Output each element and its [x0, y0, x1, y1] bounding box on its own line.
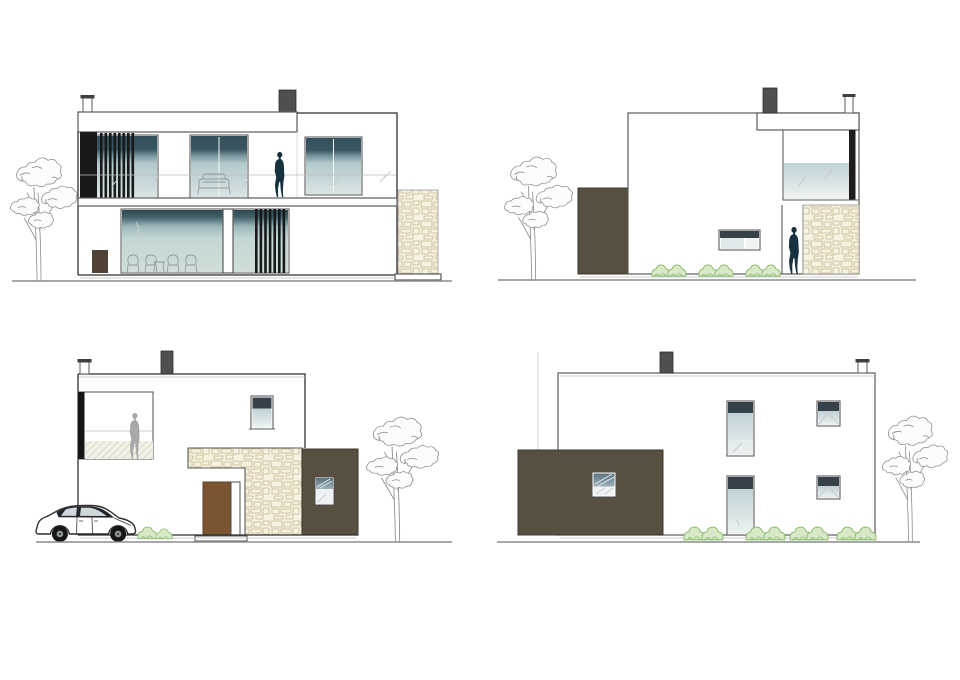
tree — [10, 158, 77, 281]
strip-window — [719, 230, 760, 250]
tree — [504, 157, 572, 281]
chimney — [763, 88, 777, 113]
pier — [223, 209, 233, 273]
window-balcony-right — [305, 137, 362, 195]
wheel — [52, 526, 68, 542]
olive-window — [315, 477, 334, 505]
elevation-top-left — [10, 90, 452, 281]
tree — [882, 416, 947, 542]
wheel — [110, 526, 126, 542]
olive-volume — [302, 449, 358, 535]
small-window — [249, 396, 275, 429]
chimney — [660, 352, 673, 373]
elevation-top-right — [498, 88, 916, 281]
chimney — [161, 351, 173, 374]
chimney-flue — [78, 359, 92, 374]
dark-fin — [78, 392, 85, 459]
roof-fascia — [78, 112, 297, 132]
chimney-flue — [81, 95, 95, 112]
stone-pier — [395, 190, 441, 280]
corner-window — [78, 392, 153, 459]
roof-fascia — [757, 113, 859, 130]
tall-window-upper — [727, 401, 754, 456]
garage-window — [592, 472, 616, 497]
bushes — [138, 527, 172, 539]
small-window-lower — [817, 476, 840, 499]
garage-volume — [518, 450, 663, 535]
tree — [367, 417, 439, 542]
chimney-flue — [843, 94, 856, 113]
entry-step — [195, 536, 247, 541]
parked-car — [36, 506, 136, 543]
dark-reveal — [849, 130, 856, 200]
window-balcony-center — [190, 135, 248, 198]
floor-slab — [78, 198, 397, 206]
terrace-texture — [85, 441, 153, 459]
elevation-bottom-right — [497, 352, 948, 542]
elevations-drawing — [0, 0, 960, 680]
recessed-corner-window — [783, 130, 859, 200]
person-on-balcony — [275, 152, 285, 197]
architectural-elevation-sheet — [0, 0, 960, 680]
tall-window-lower — [727, 476, 754, 535]
door-sidelight — [231, 482, 240, 536]
olive-annex-volume — [578, 188, 628, 274]
small-window-upper — [817, 401, 840, 426]
stone-wall — [803, 205, 859, 274]
chimney-flue — [856, 359, 870, 373]
window-louvered — [80, 132, 158, 198]
dark-service-panel — [92, 250, 108, 273]
storefront-glazing — [121, 209, 289, 273]
elevation-bottom-left — [36, 351, 452, 542]
solid-louver-panel — [80, 132, 97, 198]
chimney — [279, 90, 296, 112]
entry-door — [195, 482, 247, 541]
